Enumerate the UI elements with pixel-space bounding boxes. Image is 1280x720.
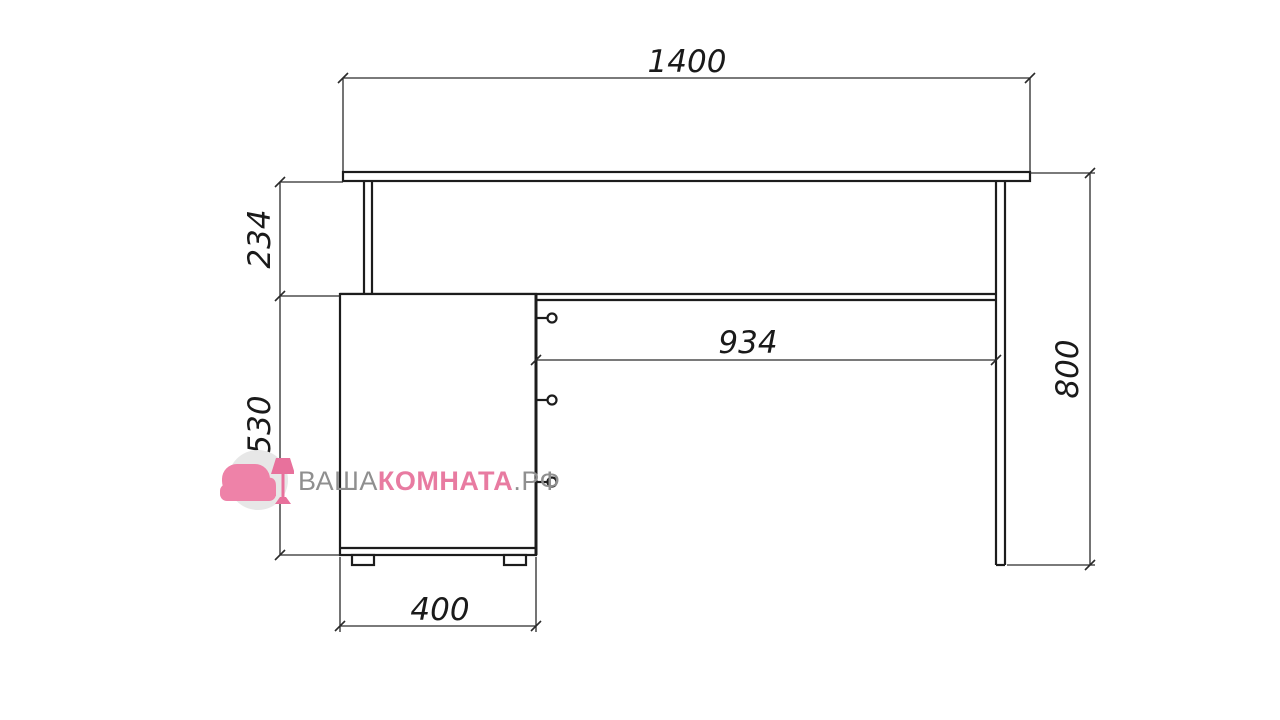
dim-label-800: 800 bbox=[1050, 339, 1086, 398]
drawer-knobs bbox=[536, 314, 557, 487]
dim-cabinet-width: 400 bbox=[335, 557, 541, 632]
dim-label-934: 934 bbox=[718, 325, 777, 361]
desktop-panel bbox=[343, 172, 1030, 181]
dim-label-530: 530 bbox=[242, 395, 278, 454]
drawing-canvas: 1400 234 530 400 bbox=[0, 0, 1280, 720]
dim-cabinet-height: 530 bbox=[242, 296, 340, 560]
left-leg bbox=[364, 181, 372, 294]
dim-label-234: 234 bbox=[242, 209, 278, 268]
cabinet-foot-right bbox=[504, 555, 526, 565]
desk-dimension-drawing: 1400 234 530 400 bbox=[0, 0, 1280, 720]
desk-outline bbox=[340, 172, 1030, 565]
drawer-knob-3 bbox=[548, 478, 557, 487]
dim-total-width: 1400 bbox=[338, 44, 1035, 171]
drawer-knob-2 bbox=[548, 396, 557, 405]
dim-knee-space: 934 bbox=[531, 325, 1001, 365]
drawer-cabinet bbox=[340, 294, 536, 565]
dim-label-1400: 1400 bbox=[648, 44, 727, 80]
dim-under-top-clearance: 234 bbox=[242, 177, 343, 301]
cabinet-foot-left bbox=[352, 555, 374, 565]
drawer-knob-1 bbox=[548, 314, 557, 323]
dim-total-height: 800 bbox=[1007, 168, 1095, 570]
right-side-panel bbox=[996, 181, 1005, 565]
dim-label-400: 400 bbox=[410, 592, 469, 628]
